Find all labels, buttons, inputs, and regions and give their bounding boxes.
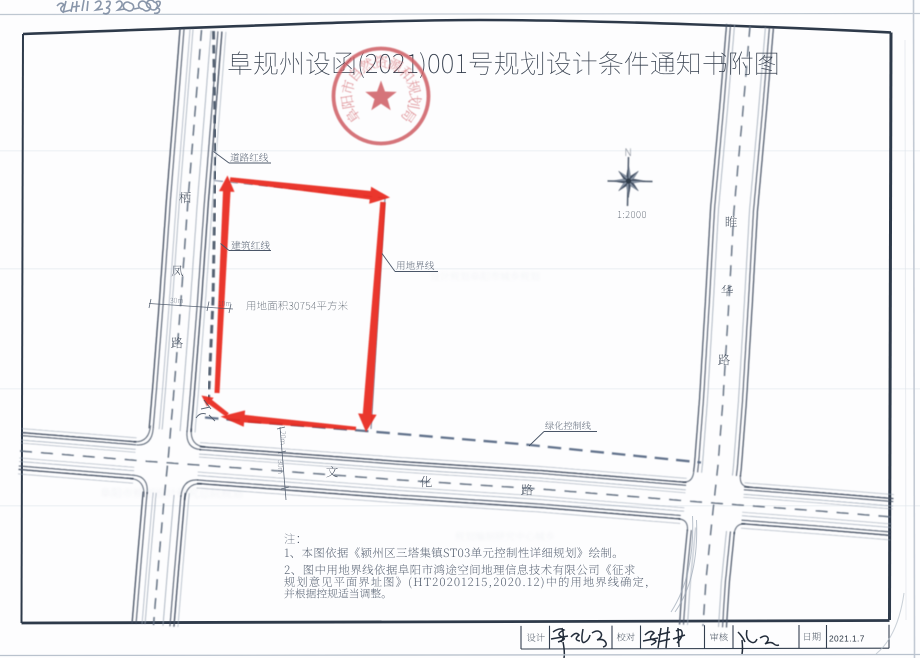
svg-text:2021.1.7: 2021.1.7 xyxy=(829,634,865,644)
